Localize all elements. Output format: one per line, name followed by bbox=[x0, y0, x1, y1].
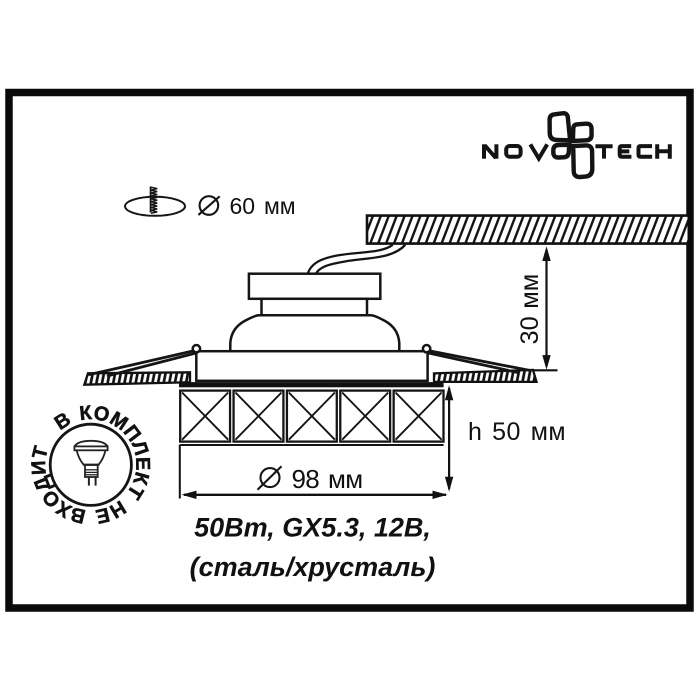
svg-text:50Вт, GX5.3, 12В,: 50Вт, GX5.3, 12В, bbox=[194, 513, 431, 543]
svg-text:98 мм: 98 мм bbox=[292, 464, 363, 494]
svg-text:(сталь/хрусталь): (сталь/хрусталь) bbox=[190, 552, 436, 582]
svg-text:h 50 мм: h 50 мм bbox=[468, 418, 566, 446]
svg-text:30 мм: 30 мм bbox=[516, 274, 544, 345]
svg-text:60 мм: 60 мм bbox=[230, 193, 296, 219]
